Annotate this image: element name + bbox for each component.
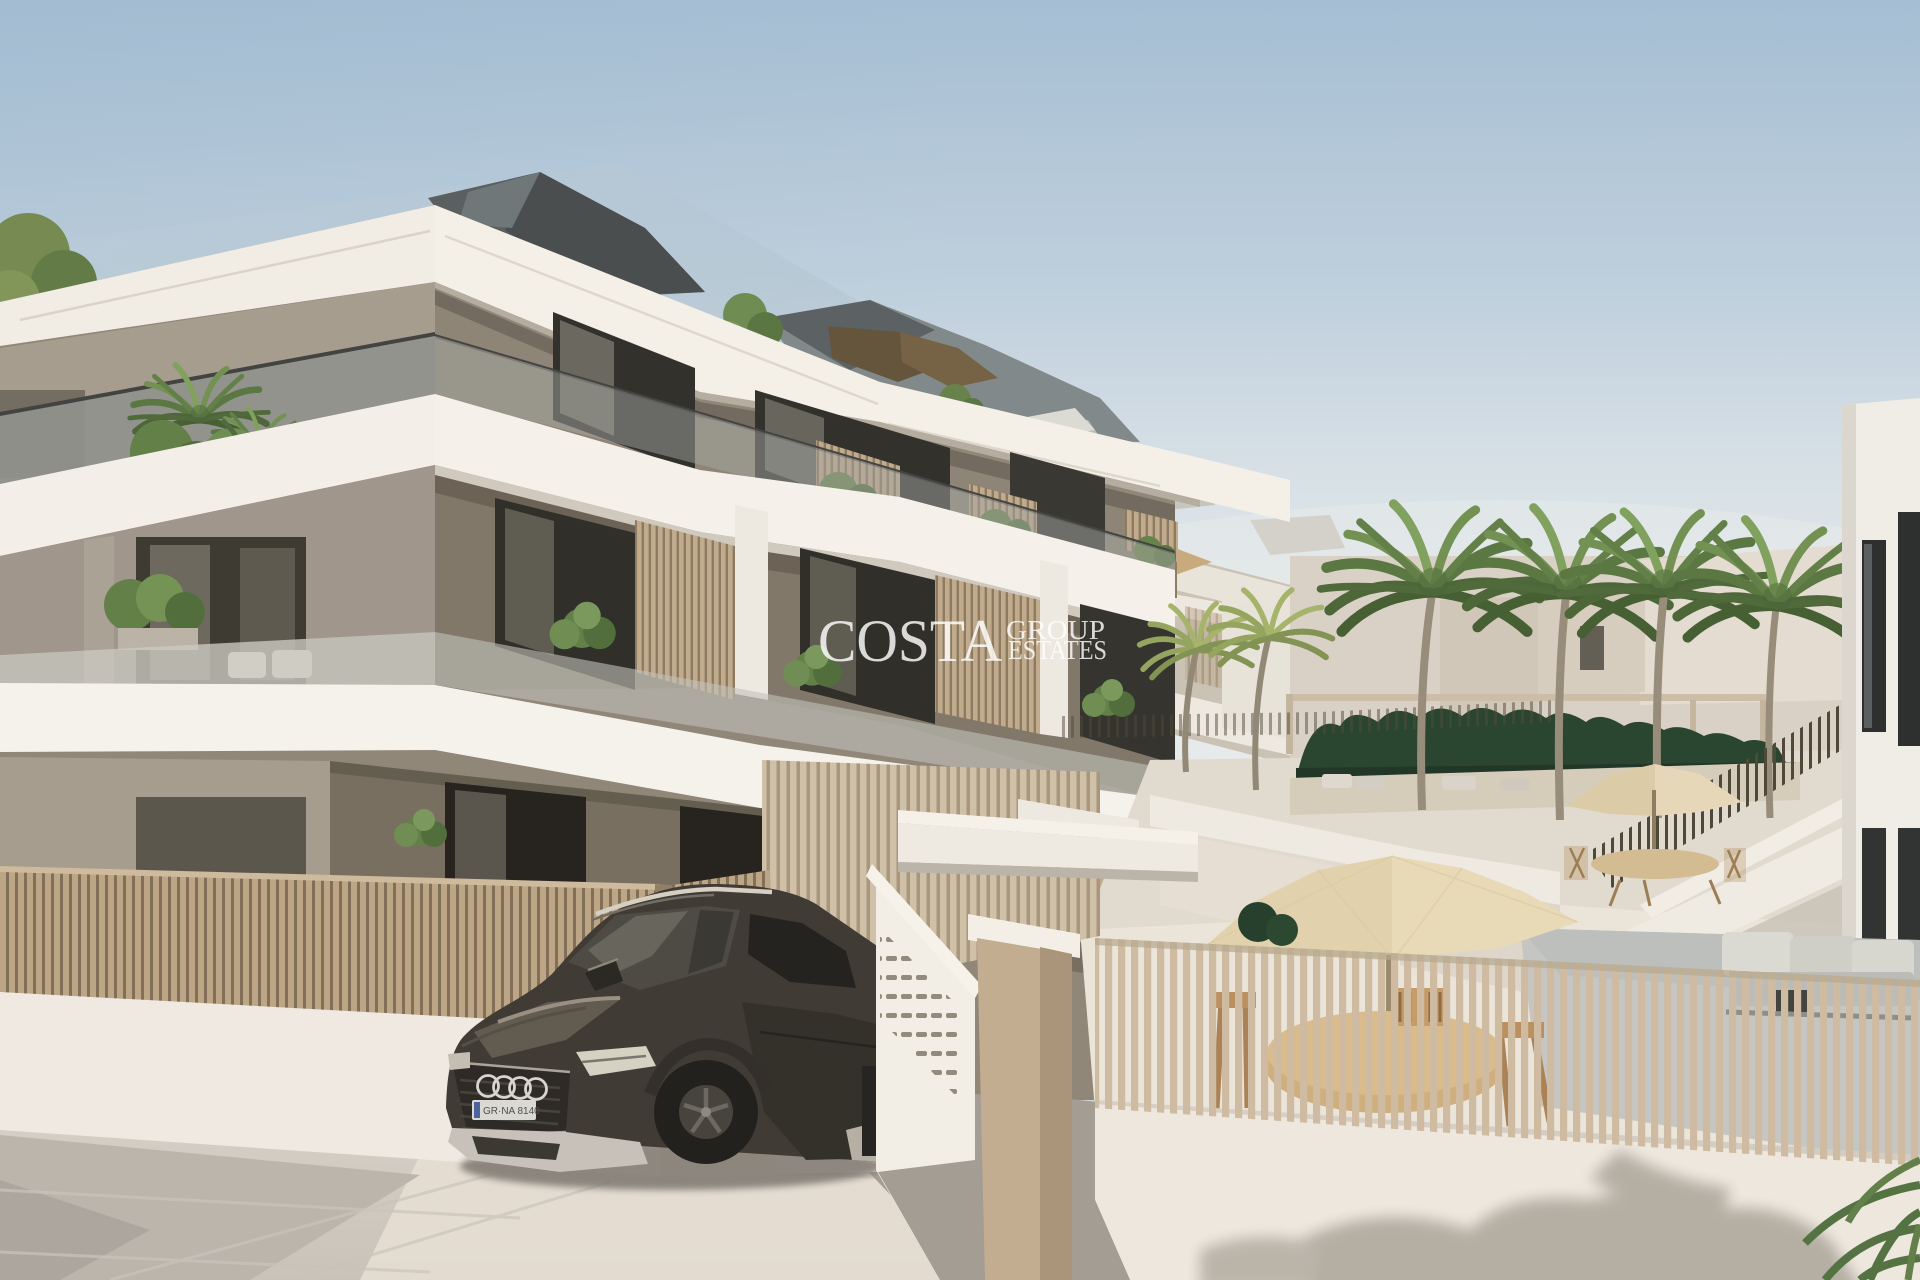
svg-text:COSTA: COSTA xyxy=(818,608,1002,674)
svg-text:ESTATES: ESTATES xyxy=(1008,635,1107,665)
